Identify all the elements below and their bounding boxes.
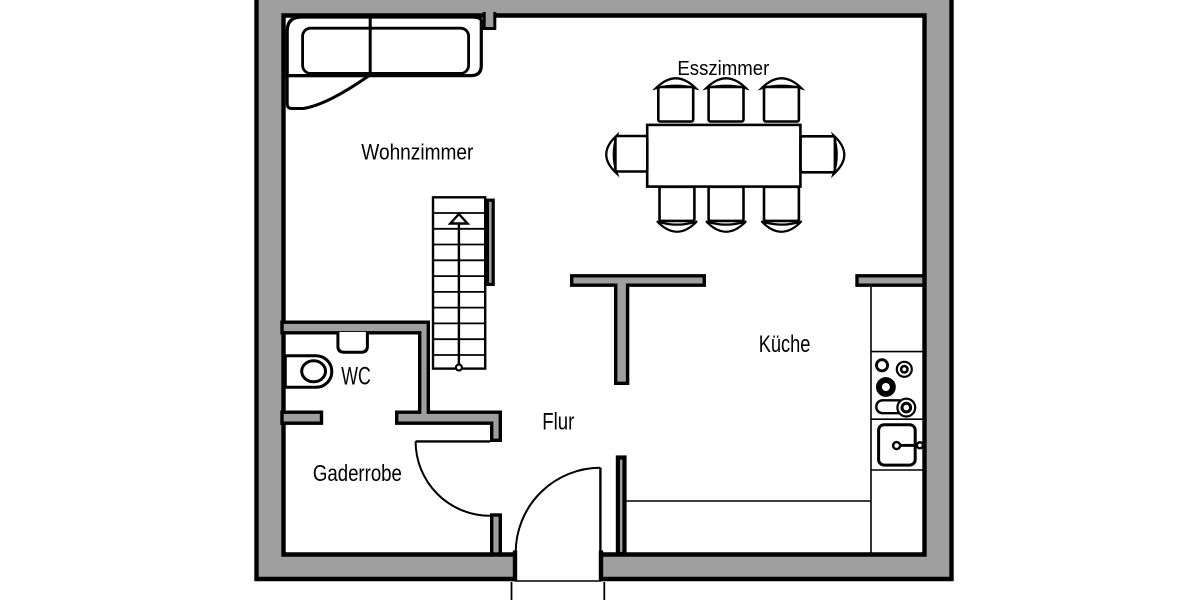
- svg-text:Flur: Flur: [542, 408, 574, 435]
- svg-text:Gaderrobe: Gaderrobe: [313, 461, 402, 486]
- svg-text:Wohnzimmer: Wohnzimmer: [361, 140, 473, 165]
- svg-text:Küche: Küche: [759, 331, 811, 358]
- svg-text:Esszimmer: Esszimmer: [677, 59, 769, 81]
- svg-text:WC: WC: [341, 362, 371, 391]
